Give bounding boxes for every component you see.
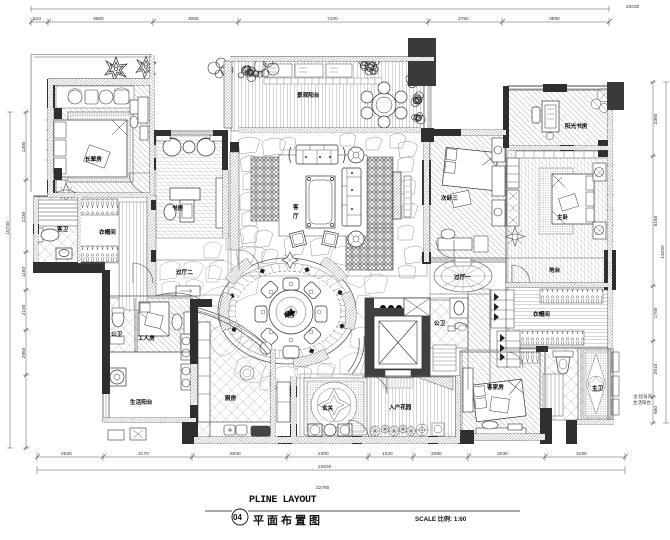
svg-text:610: 610 [33, 16, 41, 22]
svg-text:1020: 1020 [382, 451, 393, 457]
svg-text:22030: 22030 [318, 464, 332, 470]
svg-text:2230: 2230 [21, 211, 27, 222]
svg-text:地台: 地台 [549, 266, 561, 274]
svg-text:平面布置图: 平面布置图 [253, 513, 323, 527]
svg-text:2950: 2950 [21, 347, 27, 358]
svg-text:入户花园: 入户花园 [388, 403, 412, 411]
svg-text:04: 04 [233, 513, 242, 522]
svg-text:客卫: 客卫 [56, 225, 69, 233]
svg-text:主卫: 主卫 [592, 384, 604, 392]
svg-text:1150: 1150 [21, 267, 27, 278]
svg-text:客: 客 [292, 203, 299, 211]
svg-text:书房: 书房 [172, 204, 184, 212]
svg-text:3170: 3170 [138, 451, 149, 457]
svg-text:2030: 2030 [497, 451, 508, 457]
svg-text:3890: 3890 [549, 16, 560, 22]
svg-text:次卧三: 次卧三 [441, 194, 458, 202]
svg-text:公卫: 公卫 [434, 320, 446, 327]
svg-text:2100: 2100 [21, 304, 27, 315]
svg-text:5030: 5030 [230, 451, 241, 457]
svg-text:注:括号内: 注:括号内 [633, 393, 653, 400]
svg-text:景观阳台: 景观阳台 [296, 91, 320, 99]
svg-text:公卫: 公卫 [111, 331, 123, 338]
svg-text:22760: 22760 [316, 485, 330, 491]
svg-text:2350: 2350 [653, 113, 659, 124]
svg-text:22030: 22030 [626, 4, 640, 10]
svg-text:2630: 2630 [61, 451, 72, 457]
svg-text:工人房: 工人房 [138, 334, 155, 342]
svg-text:PLINE LAYOUT: PLINE LAYOUT [249, 495, 317, 506]
svg-text:3060: 3060 [188, 16, 199, 22]
svg-text:过厅二: 过厅二 [176, 268, 193, 276]
svg-text:SCALE 比例: 1:60: SCALE 比例: 1:60 [415, 515, 467, 523]
svg-text:玄关: 玄关 [322, 404, 334, 412]
svg-text:2910: 2910 [653, 363, 659, 374]
svg-text:主卧: 主卧 [557, 213, 569, 221]
svg-text:阳光书房: 阳光书房 [565, 122, 588, 130]
svg-text:1700: 1700 [653, 307, 659, 318]
svg-text:1300: 1300 [21, 141, 27, 152]
svg-text:厅: 厅 [293, 212, 299, 220]
svg-text:650: 650 [653, 406, 659, 414]
svg-text:15730: 15730 [5, 221, 11, 235]
svg-text:餐厅: 餐厅 [283, 311, 296, 319]
svg-text:生活阳台: 生活阳台 [633, 399, 651, 406]
svg-text:13250: 13250 [660, 245, 666, 259]
svg-text:厨房: 厨房 [225, 394, 237, 402]
svg-text:2750: 2750 [458, 16, 469, 22]
svg-text:5160: 5160 [653, 215, 659, 226]
svg-text:长辈房: 长辈房 [85, 155, 102, 163]
svg-text:衣帽间: 衣帽间 [533, 310, 550, 318]
svg-text:3680: 3680 [93, 16, 104, 22]
svg-text:生活阳台: 生活阳台 [130, 398, 153, 406]
svg-text:客家房: 客家房 [486, 383, 504, 391]
svg-text:2090: 2090 [431, 451, 442, 457]
svg-text:3190: 3190 [576, 451, 587, 457]
svg-text:过厅一: 过厅一 [454, 273, 471, 281]
svg-text:衣帽间: 衣帽间 [99, 228, 116, 236]
svg-text:2300: 2300 [318, 451, 329, 457]
svg-text:7100: 7100 [327, 16, 338, 22]
